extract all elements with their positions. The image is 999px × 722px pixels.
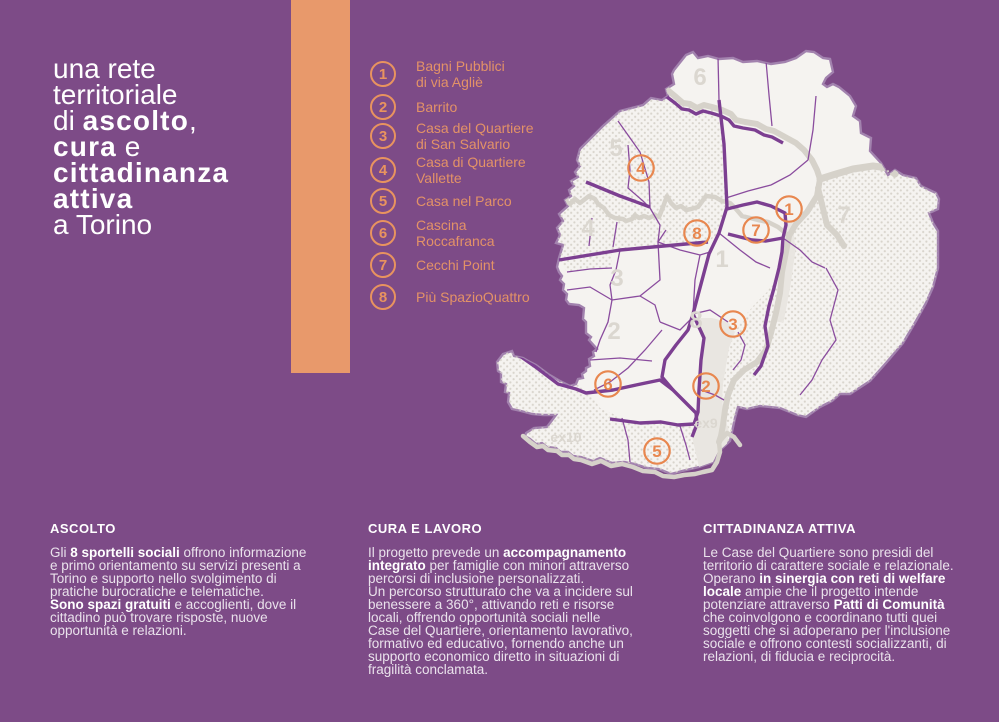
- svg-text:7: 7: [751, 221, 760, 240]
- svg-text:1: 1: [784, 200, 793, 219]
- svg-text:4: 4: [636, 159, 646, 178]
- svg-text:5: 5: [652, 442, 661, 461]
- svg-text:2: 2: [701, 377, 710, 396]
- svg-text:6: 6: [603, 375, 612, 394]
- svg-text:2: 2: [607, 318, 620, 345]
- svg-text:1: 1: [715, 246, 728, 273]
- svg-text:8: 8: [689, 307, 702, 334]
- svg-text:3: 3: [728, 315, 737, 334]
- svg-text:ex10: ex10: [550, 429, 581, 445]
- svg-text:ex9: ex9: [694, 415, 718, 431]
- svg-text:3: 3: [610, 265, 623, 292]
- svg-text:6: 6: [693, 64, 706, 91]
- svg-text:4: 4: [581, 215, 595, 242]
- svg-text:8: 8: [692, 224, 701, 243]
- svg-text:5: 5: [609, 135, 622, 162]
- svg-text:7: 7: [837, 202, 850, 229]
